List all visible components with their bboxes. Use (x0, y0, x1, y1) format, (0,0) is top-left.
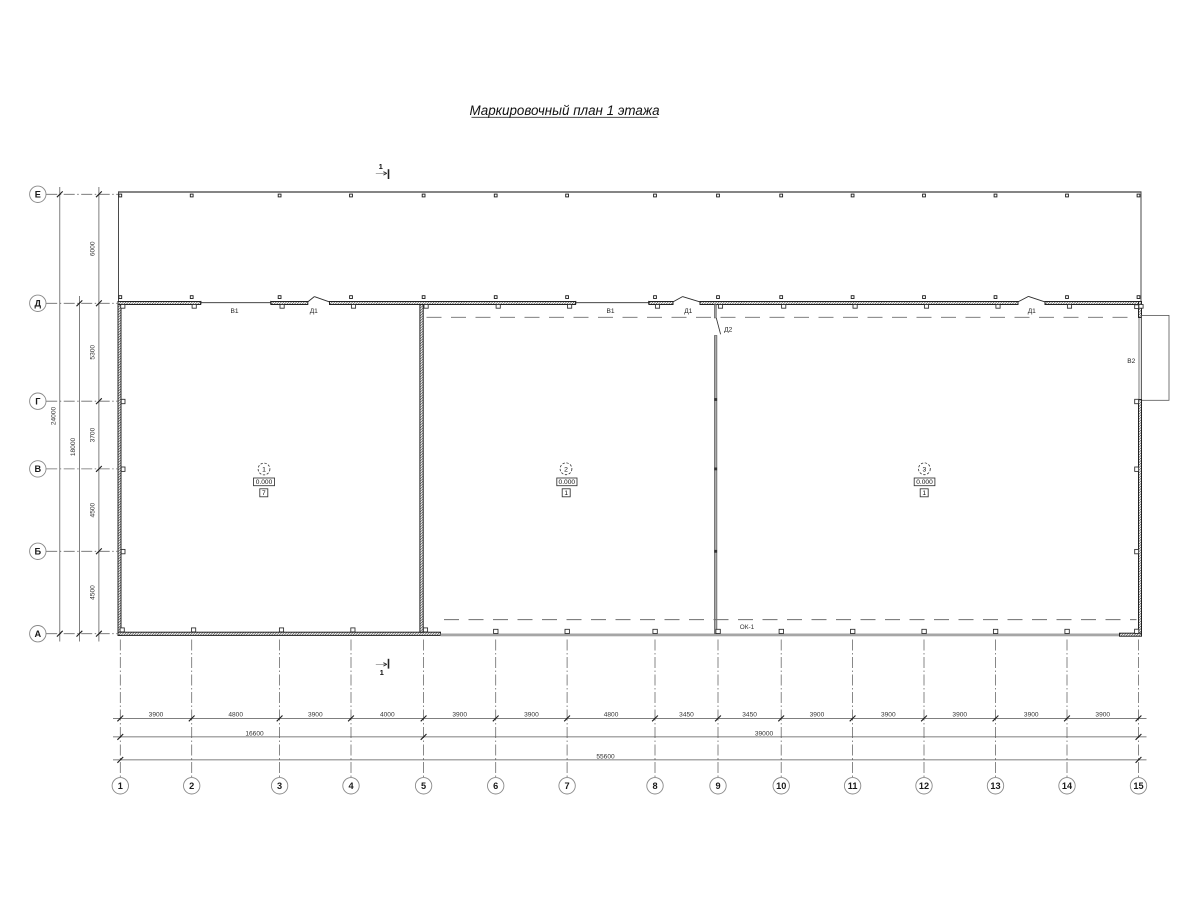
svg-text:18000: 18000 (70, 438, 77, 457)
svg-text:4800: 4800 (228, 712, 243, 719)
svg-text:3450: 3450 (679, 712, 694, 719)
svg-text:9: 9 (715, 781, 720, 791)
svg-text:3900: 3900 (881, 712, 896, 719)
svg-text:0.000: 0.000 (916, 479, 933, 486)
svg-text:3: 3 (923, 466, 927, 473)
svg-text:16600: 16600 (245, 730, 264, 737)
svg-text:13: 13 (990, 781, 1000, 791)
svg-text:7: 7 (565, 781, 570, 791)
svg-text:Е: Е (35, 190, 41, 200)
svg-text:4: 4 (348, 781, 354, 791)
svg-text:55600: 55600 (596, 753, 615, 760)
svg-text:В1: В1 (230, 308, 238, 315)
svg-text:12: 12 (919, 781, 929, 791)
svg-text:А: А (34, 629, 41, 639)
svg-text:11: 11 (848, 781, 858, 791)
svg-text:В1: В1 (606, 308, 614, 315)
svg-text:10: 10 (776, 781, 786, 791)
svg-text:14: 14 (1062, 781, 1073, 791)
svg-text:Д1: Д1 (310, 308, 318, 315)
svg-text:4500: 4500 (90, 585, 97, 600)
svg-text:Д: Д (35, 299, 42, 309)
svg-text:3: 3 (277, 781, 282, 791)
svg-text:В2: В2 (1127, 358, 1135, 365)
svg-text:3900: 3900 (1024, 712, 1039, 719)
svg-text:5: 5 (421, 781, 426, 791)
svg-text:В: В (34, 464, 41, 474)
svg-text:4500: 4500 (90, 502, 97, 517)
svg-text:6: 6 (493, 781, 498, 791)
svg-text:1: 1 (922, 490, 926, 497)
svg-text:1: 1 (118, 781, 123, 791)
svg-text:5300: 5300 (90, 345, 97, 360)
svg-text:1: 1 (262, 467, 266, 474)
svg-text:Д1: Д1 (1028, 308, 1036, 315)
svg-text:Маркировочный план 1 этажа: Маркировочный план 1 этажа (469, 103, 659, 118)
svg-text:Д2: Д2 (724, 326, 732, 333)
svg-text:Д1: Д1 (684, 308, 692, 315)
svg-text:4800: 4800 (604, 712, 619, 719)
svg-text:8: 8 (652, 781, 657, 791)
svg-text:Б: Б (34, 547, 41, 557)
svg-text:39000: 39000 (755, 730, 774, 737)
svg-text:3700: 3700 (90, 427, 97, 442)
svg-text:ОК-1: ОК-1 (740, 624, 755, 631)
svg-text:3900: 3900 (952, 712, 967, 719)
svg-text:1: 1 (564, 490, 568, 497)
svg-text:2: 2 (564, 466, 568, 473)
svg-text:0.000: 0.000 (559, 479, 576, 486)
svg-text:3900: 3900 (524, 712, 539, 719)
svg-text:6000: 6000 (90, 241, 97, 256)
svg-text:15: 15 (1133, 781, 1143, 791)
svg-text:3900: 3900 (149, 712, 164, 719)
svg-text:3450: 3450 (742, 712, 757, 719)
svg-text:3900: 3900 (810, 712, 825, 719)
svg-text:Г: Г (35, 396, 41, 406)
svg-text:24000: 24000 (50, 407, 57, 426)
svg-text:7: 7 (262, 490, 266, 497)
svg-text:0.000: 0.000 (256, 479, 273, 486)
svg-text:2: 2 (189, 781, 194, 791)
svg-text:4000: 4000 (380, 712, 395, 719)
svg-text:3900: 3900 (452, 712, 467, 719)
svg-text:3900: 3900 (308, 712, 323, 719)
svg-text:3900: 3900 (1095, 712, 1110, 719)
